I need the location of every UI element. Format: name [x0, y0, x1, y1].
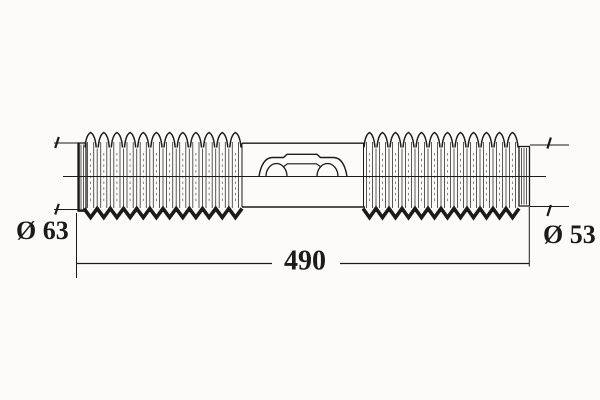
right-top-tick [547, 138, 551, 149]
bellows-pleat-peaks [85, 133, 241, 148]
bridge-left-arch [266, 164, 287, 177]
center-tube [242, 143, 365, 207]
left-diameter-label: Ø 63 [16, 216, 69, 245]
left-bellows [84, 133, 242, 218]
bellows-bottom-zigzag [363, 209, 519, 218]
bridge-right-arch [317, 164, 338, 177]
bellows-bottom-zigzag [84, 209, 242, 218]
dimension-left-diameter: Ø 63 [16, 137, 79, 245]
right-bellows [363, 133, 519, 218]
bellows-pleat-peaks [364, 133, 518, 148]
length-label: 490 [284, 246, 326, 277]
bellows-boot-diagram: Ø 63 Ø 53 490 [0, 0, 600, 400]
bridge-center-bar [283, 164, 321, 167]
bellows-fold-lines [88, 142, 239, 208]
right-diameter-label: Ø 53 [543, 220, 596, 249]
technical-drawing-canvas: Ø 63 Ø 53 490 [0, 0, 600, 400]
dimension-right-diameter: Ø 53 [530, 138, 596, 250]
bellows-fold-lines [367, 142, 516, 208]
